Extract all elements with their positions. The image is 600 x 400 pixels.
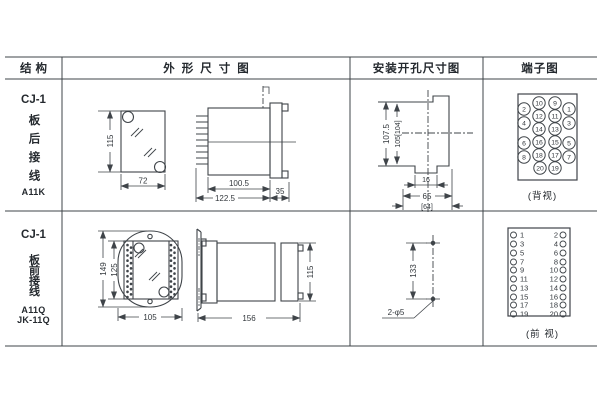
row1-outline-front-view xyxy=(98,111,166,190)
row1-type-code: A11K xyxy=(5,186,62,198)
row2-outline-side-view xyxy=(197,229,316,322)
terminal-number: 3 xyxy=(520,240,524,249)
terminal-number: 15 xyxy=(551,139,559,146)
terminal-number: 14 xyxy=(550,284,558,293)
terminal-number: 1 xyxy=(567,106,571,113)
column-header-terminal: 端子图 xyxy=(483,57,597,79)
row1-terminal-view-label: (背视) xyxy=(495,188,590,202)
dim-label-107-5: 107.5 xyxy=(382,123,391,144)
terminal-number: 11 xyxy=(520,275,528,284)
row2-terminal-numbers: 1 3 5 7 9 11 13 15 17 19 2 4 6 8 10 12 1… xyxy=(520,231,558,319)
terminal-number: 9 xyxy=(553,100,557,107)
dim-label-115-r2: 115 xyxy=(306,265,315,278)
column-header-structure: 结构 xyxy=(5,57,62,79)
terminal-number: 4 xyxy=(522,120,526,127)
terminal-number: 5 xyxy=(567,140,571,147)
terminal-number: 6 xyxy=(522,140,526,147)
terminal-number: 17 xyxy=(551,152,559,159)
row2-model-label: CJ-1 xyxy=(5,228,62,242)
terminal-number: 1 xyxy=(520,231,524,240)
relay-dimension-sheet: 115 72 xyxy=(0,0,600,400)
terminal-number: 10 xyxy=(550,266,558,275)
dim-label-35: 35 xyxy=(276,187,285,196)
terminal-number: 10 xyxy=(535,100,543,107)
terminal-number: 17 xyxy=(520,301,528,310)
dim-label-16: 16 xyxy=(422,177,430,184)
terminal-number: 6 xyxy=(554,249,558,258)
column-header-mounting: 安装开孔尺寸图 xyxy=(350,57,483,79)
terminal-number: 16 xyxy=(535,139,543,146)
terminal-number: 5 xyxy=(520,249,524,258)
terminal-number: 13 xyxy=(551,126,559,133)
terminal-number: 12 xyxy=(550,275,558,284)
terminal-number: 9 xyxy=(520,266,524,275)
terminal-number: 2 xyxy=(522,106,526,113)
dim-label-72: 72 xyxy=(139,177,148,186)
row2-terminal-diagram xyxy=(508,228,570,317)
terminal-number: 2 xyxy=(554,231,558,240)
row2-terminal-view-label: (前 视) xyxy=(495,326,590,340)
terminal-number: 18 xyxy=(535,152,543,159)
dim-label-100-5: 100.5 xyxy=(229,179,250,188)
row2-type-code-2: JK-11Q xyxy=(5,314,62,325)
terminal-number: 13 xyxy=(520,284,528,293)
dim-label-105: 105 xyxy=(143,313,157,322)
row1-model-label: CJ-1 xyxy=(5,93,62,107)
dim-label-156: 156 xyxy=(242,314,256,323)
terminal-number: 20 xyxy=(550,310,558,319)
dim-label-122-5: 122.5 xyxy=(215,194,236,203)
dim-label-149: 149 xyxy=(99,262,108,276)
terminal-number: 20 xyxy=(536,165,544,172)
row2-wiring-text: 板前接线 xyxy=(26,254,42,296)
column-header-outline: 外形尺寸图 xyxy=(62,57,350,79)
terminal-number: 7 xyxy=(567,154,571,161)
dim-label-133: 133 xyxy=(409,264,418,278)
terminal-number: 14 xyxy=(535,126,543,133)
dim-label-105-104: 105[104] xyxy=(395,120,402,147)
terminal-number: 19 xyxy=(520,310,528,319)
terminal-number: 19 xyxy=(551,165,559,172)
terminal-number: 4 xyxy=(554,240,558,249)
dim-label-64: [64] xyxy=(421,204,433,211)
dim-label-125: 125 xyxy=(110,263,119,277)
terminal-number: 18 xyxy=(550,301,558,310)
row1-wiring-label: 板后接线 xyxy=(5,112,62,190)
terminal-number: 3 xyxy=(567,120,571,127)
dim-label-2-phi5: 2-φ5 xyxy=(388,308,405,317)
terminal-number: 8 xyxy=(522,154,526,161)
dim-label-115-r1: 115 xyxy=(106,134,115,147)
row1-wiring-text: 板后接线 xyxy=(26,114,42,188)
dim-label-65: 65 xyxy=(423,192,432,201)
row2-wiring-label: 板前接线 xyxy=(5,251,62,299)
terminal-number: 11 xyxy=(551,113,558,120)
terminal-number: 12 xyxy=(535,113,543,120)
